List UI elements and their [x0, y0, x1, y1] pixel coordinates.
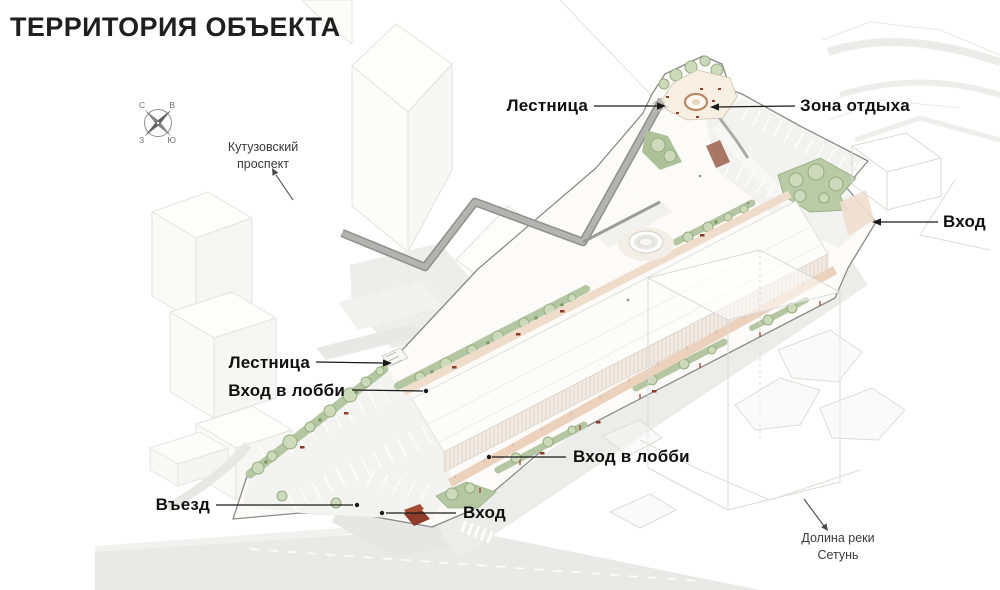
- fountain: [618, 227, 674, 261]
- callout-stairs-top: Лестница: [507, 97, 588, 115]
- leader-stairs-left: [316, 362, 384, 363]
- page-title: ТЕРРИТОРИЯ ОБЪЕКТА: [10, 12, 341, 43]
- kutuzovsky-arrow: [276, 175, 293, 200]
- leader-dot: [424, 389, 428, 393]
- compass-east-label: В: [169, 101, 175, 110]
- compass-west-label: З: [139, 136, 144, 145]
- callout-stairs-left: Лестница: [229, 354, 310, 372]
- callout-lobby-entrance-bottom: Вход в лобби: [573, 448, 690, 466]
- site-plan-illustration: [0, 0, 1000, 590]
- callout-entrance-right: Вход: [943, 213, 986, 231]
- setun-arrow: [804, 499, 824, 526]
- callout-driveway: Въезд: [156, 496, 210, 514]
- leader-dot: [380, 511, 384, 515]
- context-label-kutuzovsky: Кутузовский проспект: [198, 139, 328, 173]
- leader-dot: [487, 455, 491, 459]
- compass-rose: С В З Ю: [135, 100, 181, 146]
- callout-lobby-entrance-left: Вход в лобби: [228, 382, 345, 400]
- compass-south-label: Ю: [167, 136, 176, 145]
- callout-entrance-bottom: Вход: [463, 504, 506, 522]
- leader-dot: [355, 503, 359, 507]
- callout-rest-zone: Зона отдыха: [800, 97, 910, 115]
- compass-north-label: С: [139, 101, 145, 110]
- context-label-setun: Долина реки Сетунь: [773, 530, 903, 564]
- slide: ТЕРРИТОРИЯ ОБЪЕКТА С В З Ю Кутузовский п…: [0, 0, 1000, 590]
